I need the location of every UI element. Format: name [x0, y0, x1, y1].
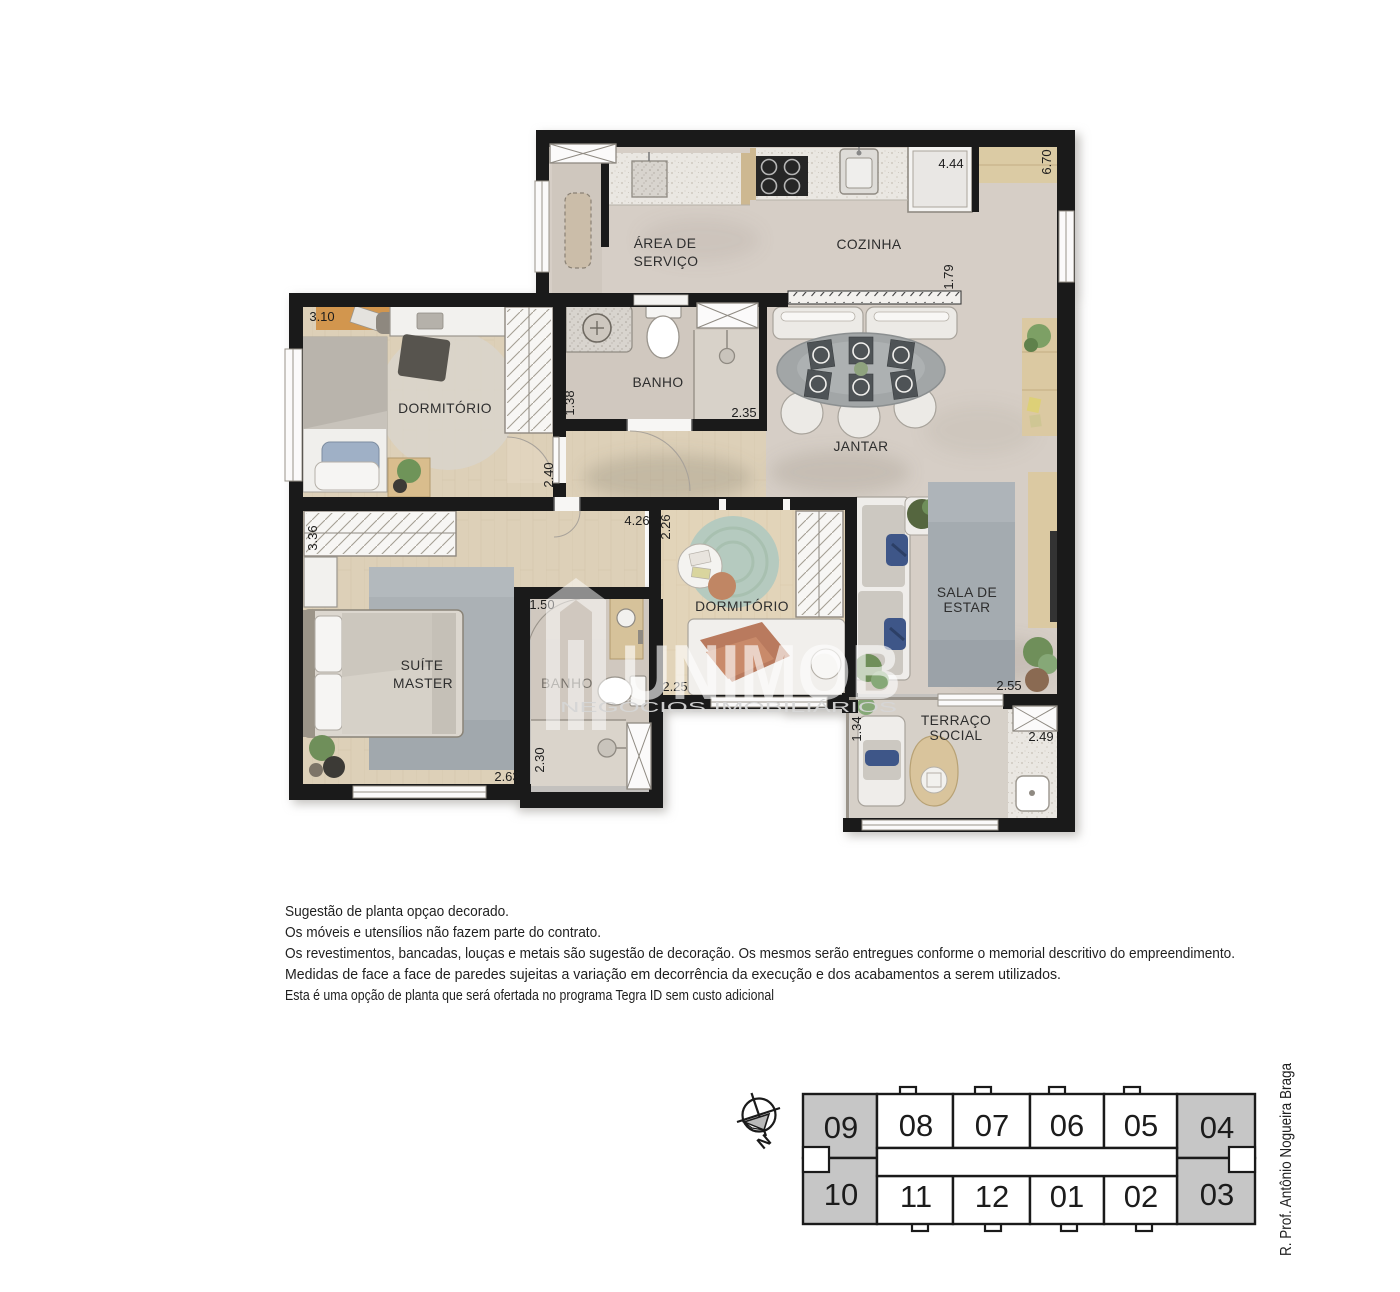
svg-text:2.49: 2.49 — [1028, 729, 1053, 744]
svg-text:Esta é uma opção de planta que: Esta é uma opção de planta que será ofer… — [285, 987, 774, 1004]
svg-text:SERVIÇO: SERVIÇO — [634, 254, 699, 269]
svg-text:ÁREA DE: ÁREA DE — [634, 235, 697, 251]
svg-text:06: 06 — [1050, 1108, 1084, 1143]
svg-text:02: 02 — [1124, 1179, 1158, 1214]
svg-text:09: 09 — [824, 1110, 858, 1145]
svg-text:MASTER: MASTER — [393, 676, 453, 691]
svg-text:2.40: 2.40 — [541, 462, 556, 487]
svg-text:1.79: 1.79 — [941, 264, 956, 289]
svg-text:03: 03 — [1200, 1177, 1234, 1212]
svg-text:2.35: 2.35 — [731, 405, 756, 420]
svg-text:SUÍTE: SUÍTE — [401, 657, 444, 673]
svg-text:1.34: 1.34 — [849, 716, 864, 741]
svg-text:6.70: 6.70 — [1039, 149, 1054, 174]
svg-text:07: 07 — [975, 1108, 1009, 1143]
svg-text:R. Prof. Antônio Nogueira Brag: R. Prof. Antônio Nogueira Braga — [1278, 1063, 1295, 1256]
svg-text:SALA DE: SALA DE — [937, 585, 997, 600]
svg-text:COZINHA: COZINHA — [837, 237, 902, 252]
svg-text:DORMITÓRIO: DORMITÓRIO — [695, 598, 789, 614]
svg-text:NEGÓCIOS IMOBILIÁRIOS: NEGÓCIOS IMOBILIÁRIOS — [560, 699, 897, 716]
svg-text:3.10: 3.10 — [309, 309, 334, 324]
svg-text:4.26: 4.26 — [624, 513, 649, 528]
svg-text:3.36: 3.36 — [305, 525, 320, 550]
svg-text:1.38: 1.38 — [562, 390, 577, 415]
svg-text:TERRAÇO: TERRAÇO — [921, 713, 991, 728]
svg-text:Os móveis e utensílios não faz: Os móveis e utensílios não fazem parte d… — [285, 924, 601, 941]
svg-text:Sugestão de planta opçao decor: Sugestão de planta opçao decorado. — [285, 903, 509, 920]
svg-text:2.55: 2.55 — [996, 678, 1021, 693]
svg-text:ESTAR: ESTAR — [944, 600, 991, 615]
svg-text:Medidas de face a face de pare: Medidas de face a face de paredes sujeit… — [285, 966, 1061, 983]
svg-text:08: 08 — [899, 1108, 933, 1143]
svg-text:2.26: 2.26 — [658, 514, 673, 539]
svg-text:Os revestimentos, bancadas, lo: Os revestimentos, bancadas, louças e met… — [285, 945, 1235, 962]
svg-text:12: 12 — [975, 1179, 1009, 1214]
svg-text:SOCIAL: SOCIAL — [929, 728, 982, 743]
svg-text:01: 01 — [1050, 1179, 1084, 1214]
svg-text:11: 11 — [900, 1179, 932, 1214]
svg-text:4.44: 4.44 — [938, 156, 963, 171]
svg-text:2.30: 2.30 — [532, 747, 547, 772]
svg-text:JANTAR: JANTAR — [833, 439, 888, 454]
svg-text:2.63: 2.63 — [494, 769, 519, 784]
svg-text:DORMITÓRIO: DORMITÓRIO — [398, 400, 492, 416]
svg-text:04: 04 — [1200, 1110, 1234, 1145]
svg-text:05: 05 — [1124, 1108, 1158, 1143]
svg-text:10: 10 — [824, 1177, 858, 1212]
svg-text:BANHO: BANHO — [632, 375, 683, 390]
